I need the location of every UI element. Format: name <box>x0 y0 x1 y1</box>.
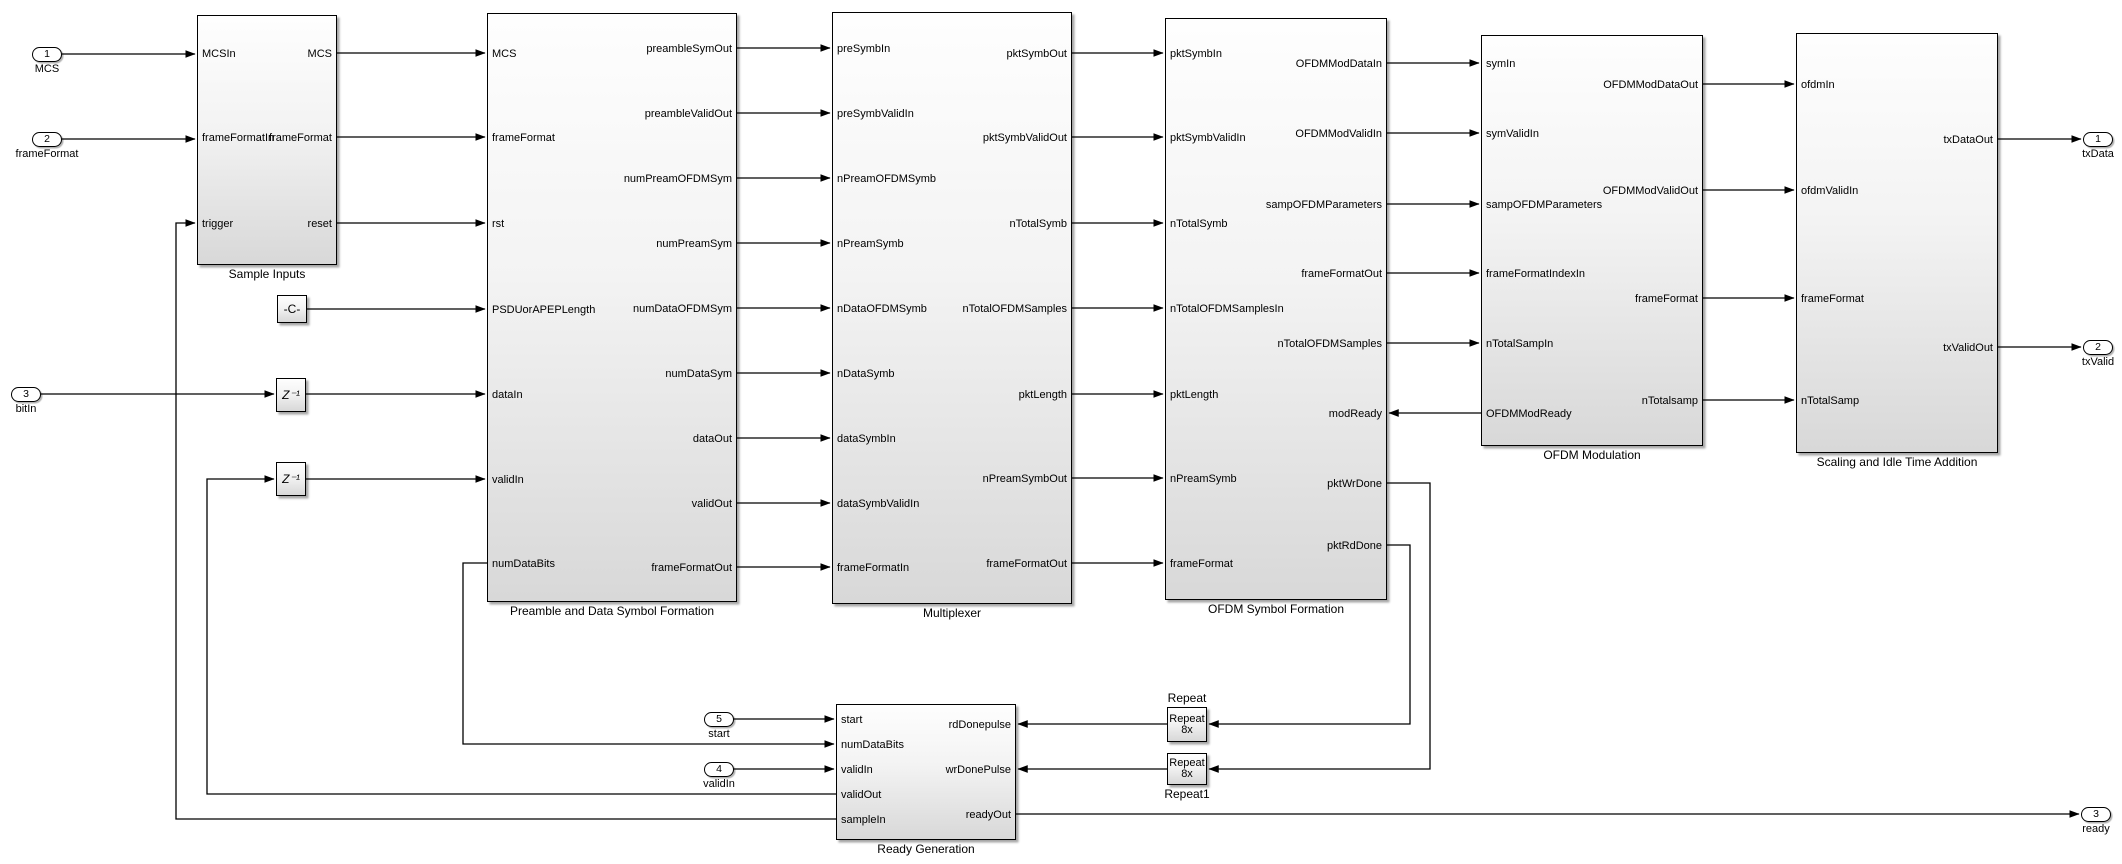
block-body-line: 8x <box>1181 769 1193 780</box>
port-label-wrDonePulse: wrDonePulse <box>946 764 1011 776</box>
port-label-txDataOut: txDataOut <box>1943 134 1993 146</box>
block-repeat[interactable]: Repeat8xRepeat <box>1167 707 1207 742</box>
inport-4-validIn[interactable]: 4 <box>704 762 734 777</box>
port-label-OFDMModDataOut: OFDMModDataOut <box>1603 79 1698 91</box>
port-label-ofdmIn: ofdmIn <box>1801 79 1835 91</box>
port-label-nTotalSymb: nTotalSymb <box>1010 218 1067 230</box>
port-label-nTotalOFDMSamples: nTotalOFDMSamples <box>962 303 1067 315</box>
block-name-repeat: Repeat <box>1168 691 1207 705</box>
port-caption-frameFormat: frameFormat <box>16 148 79 160</box>
port-number: 1 <box>2095 133 2101 145</box>
port-label-numDataSym: numDataSym <box>665 368 732 380</box>
port-label-frameFormat: frameFormat <box>1635 293 1698 305</box>
port-label-pktLength: pktLength <box>1170 389 1218 401</box>
port-label-frameFormatIn: frameFormatIn <box>837 562 909 574</box>
port-label-OFDMModValidIn: OFDMModValidIn <box>1295 128 1382 140</box>
port-label-rst: rst <box>492 218 504 230</box>
port-label-frameFormat: frameFormat <box>1170 558 1233 570</box>
port-label-symValidIn: symValidIn <box>1486 128 1539 140</box>
port-label-numDataBits: numDataBits <box>841 739 904 751</box>
inport-2-frameFormat[interactable]: 2 <box>32 132 62 147</box>
port-caption-ready: ready <box>2082 823 2110 835</box>
block-body-repeat1: Repeat8x <box>1168 754 1206 784</box>
port-number: 2 <box>44 133 50 145</box>
port-caption-MCS: MCS <box>35 63 59 75</box>
port-label-MCS: MCS <box>308 48 332 60</box>
port-label-validIn: validIn <box>492 474 524 486</box>
port-label-dataOut: dataOut <box>693 433 732 445</box>
port-label-preSymbIn: preSymbIn <box>837 43 890 55</box>
port-label-nPreamSymb: nPreamSymb <box>1170 473 1237 485</box>
model-canvas: Sample InputsMCSInframeFormatIntriggerMC… <box>0 0 2122 864</box>
port-label-nPreamOFDMSymb: nPreamOFDMSymb <box>837 173 936 185</box>
port-number: 3 <box>2093 808 2099 820</box>
port-label-frameFormatIndexIn: frameFormatIndexIn <box>1486 268 1585 280</box>
port-label-frameFormat: frameFormat <box>269 132 332 144</box>
port-label-symIn: symIn <box>1486 58 1515 70</box>
port-label-pktSymbOut: pktSymbOut <box>1006 48 1067 60</box>
port-label-numPreamOFDMSym: numPreamOFDMSym <box>624 173 732 185</box>
port-label-sampleIn: sampleIn <box>841 814 886 826</box>
port-label-nTotalOFDMSamplesIn: nTotalOFDMSamplesIn <box>1170 303 1284 315</box>
port-label-nTotalsamp: nTotalsamp <box>1642 395 1698 407</box>
block-name-ready-generation: Ready Generation <box>877 842 974 856</box>
port-label-numDataOFDMSym: numDataOFDMSym <box>633 303 732 315</box>
block-scaling[interactable]: Scaling and Idle Time AdditionofdmInofdm… <box>1796 33 1998 453</box>
block-constant[interactable]: -C- <box>277 295 307 323</box>
port-label-pktSymbValidIn: pktSymbValidIn <box>1170 132 1246 144</box>
port-caption-start: start <box>708 728 729 740</box>
port-label-start: start <box>841 714 862 726</box>
port-label-frameFormat: frameFormat <box>1801 293 1864 305</box>
port-label-nTotalSampIn: nTotalSampIn <box>1486 338 1553 350</box>
port-caption-txData: txData <box>2082 148 2114 160</box>
port-label-txValidOut: txValidOut <box>1943 342 1993 354</box>
port-label-dataIn: dataIn <box>492 389 523 401</box>
port-label-pktSymbIn: pktSymbIn <box>1170 48 1222 60</box>
port-label-preambleValidOut: preambleValidOut <box>645 108 732 120</box>
block-ofdm-symbol-formation[interactable]: OFDM Symbol FormationpktSymbInpktSymbVal… <box>1165 18 1387 600</box>
port-label-rdDonepulse: rdDonepulse <box>949 719 1011 731</box>
block-body-repeat: Repeat8x <box>1168 708 1206 741</box>
port-label-frameFormatOut: frameFormatOut <box>1301 268 1382 280</box>
inport-1-MCS[interactable]: 1 <box>32 47 62 62</box>
port-label-MCSIn: MCSIn <box>202 48 236 60</box>
port-label-PSDUorAPEPLength: PSDUorAPEPLength <box>492 304 595 316</box>
block-body-line: Repeat <box>1169 714 1204 725</box>
block-name-multiplexer: Multiplexer <box>923 606 981 620</box>
port-label-OFDMModValidOut: OFDMModValidOut <box>1603 185 1698 197</box>
port-label-nTotalOFDMSamples: nTotalOFDMSamples <box>1277 338 1382 350</box>
port-label-nDataOFDMSymb: nDataOFDMSymb <box>837 303 927 315</box>
block-body-delay1: Z⁻¹ <box>277 379 305 411</box>
port-label-frameFormat: frameFormat <box>492 132 555 144</box>
port-label-nPreamSymb: nPreamSymb <box>837 238 904 250</box>
block-preamble[interactable]: Preamble and Data Symbol FormationMCSfra… <box>487 13 737 602</box>
block-ofdm-modulation[interactable]: OFDM ModulationsymInsymValidInsampOFDMPa… <box>1481 35 1703 446</box>
port-label-pktSymbValidOut: pktSymbValidOut <box>983 132 1067 144</box>
port-label-pktWrDone: pktWrDone <box>1327 478 1382 490</box>
outport-1-txData[interactable]: 1 <box>2083 132 2113 147</box>
block-body-line: 8x <box>1181 725 1193 736</box>
port-label-MCS: MCS <box>492 48 516 60</box>
port-label-sampOFDMParameters: sampOFDMParameters <box>1266 199 1382 211</box>
port-label-validIn: validIn <box>841 764 873 776</box>
port-label-dataSymbValidIn: dataSymbValidIn <box>837 498 919 510</box>
port-caption-validIn: validIn <box>703 778 735 790</box>
port-number: 1 <box>44 48 50 60</box>
port-label-dataSymbIn: dataSymbIn <box>837 433 896 445</box>
block-multiplexer[interactable]: MultiplexerpreSymbInpreSymbValidInnPream… <box>832 12 1072 604</box>
port-label-trigger: trigger <box>202 218 233 230</box>
port-label-OFDMModDataIn: OFDMModDataIn <box>1296 58 1382 70</box>
block-delay1[interactable]: Z⁻¹ <box>276 378 306 412</box>
port-label-preSymbValidIn: preSymbValidIn <box>837 108 914 120</box>
port-label-nTotalSymb: nTotalSymb <box>1170 218 1227 230</box>
port-label-validOut: validOut <box>841 789 881 801</box>
block-name-sample-inputs: Sample Inputs <box>229 267 306 281</box>
port-label-reset: reset <box>308 218 332 230</box>
port-label-numDataBits: numDataBits <box>492 558 555 570</box>
port-number: 5 <box>716 713 722 725</box>
port-label-validOut: validOut <box>692 498 732 510</box>
port-number: 2 <box>2095 341 2101 353</box>
port-number: 3 <box>23 388 29 400</box>
block-name-ofdm-modulation: OFDM Modulation <box>1543 448 1640 462</box>
port-label-preambleSymOut: preambleSymOut <box>646 43 732 55</box>
block-repeat1[interactable]: Repeat8xRepeat1 <box>1167 753 1207 785</box>
port-label-sampOFDMParameters: sampOFDMParameters <box>1486 199 1602 211</box>
block-name-scaling: Scaling and Idle Time Addition <box>1817 455 1978 469</box>
port-label-nPreamSymbOut: nPreamSymbOut <box>983 473 1067 485</box>
port-label-pktLength: pktLength <box>1019 389 1067 401</box>
block-body-delay2: Z⁻¹ <box>277 463 305 495</box>
port-label-readyOut: readyOut <box>966 809 1011 821</box>
block-delay2[interactable]: Z⁻¹ <box>276 462 306 496</box>
port-label-frameFormatOut: frameFormatOut <box>986 558 1067 570</box>
block-name-ofdm-symbol-formation: OFDM Symbol Formation <box>1208 602 1344 616</box>
port-number: 4 <box>716 763 722 775</box>
port-label-nTotalSamp: nTotalSamp <box>1801 395 1859 407</box>
port-caption-bitIn: bitIn <box>16 403 37 415</box>
port-label-modReady: modReady <box>1329 408 1382 420</box>
block-sample-inputs[interactable]: Sample InputsMCSInframeFormatIntriggerMC… <box>197 15 337 265</box>
port-label-numPreamSym: numPreamSym <box>656 238 732 250</box>
port-label-nDataSymb: nDataSymb <box>837 368 894 380</box>
port-caption-txValid: txValid <box>2082 356 2114 368</box>
port-label-ofdmValidIn: ofdmValidIn <box>1801 185 1858 197</box>
port-label-pktRdDone: pktRdDone <box>1327 540 1382 552</box>
block-body-constant: -C- <box>278 296 306 322</box>
inport-3-bitIn[interactable]: 3 <box>11 387 41 402</box>
inport-5-start[interactable]: 5 <box>704 712 734 727</box>
block-name-repeat1: Repeat1 <box>1164 787 1209 801</box>
outport-3-ready[interactable]: 3 <box>2081 807 2111 822</box>
block-ready-generation[interactable]: Ready GenerationstartnumDataBitsvalidInv… <box>836 704 1016 840</box>
port-label-frameFormatOut: frameFormatOut <box>651 562 732 574</box>
port-label-OFDMModReady: OFDMModReady <box>1486 408 1572 420</box>
outport-2-txValid[interactable]: 2 <box>2083 340 2113 355</box>
block-name-preamble: Preamble and Data Symbol Formation <box>510 604 714 618</box>
port-label-frameFormatIn: frameFormatIn <box>202 132 274 144</box>
